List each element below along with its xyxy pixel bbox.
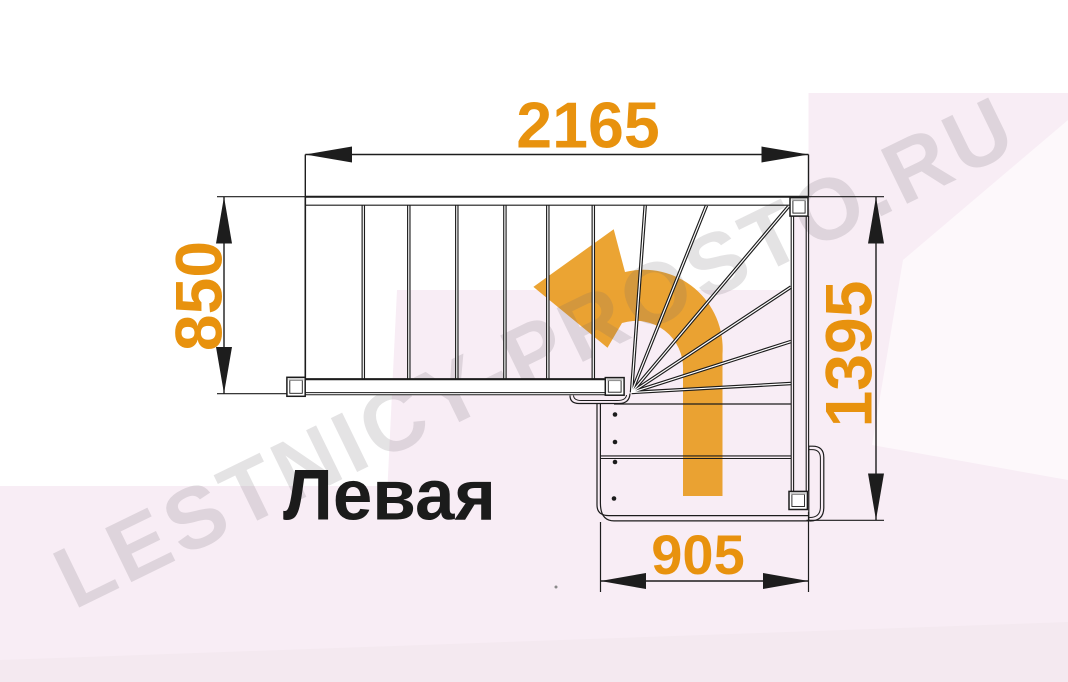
svg-text:2165: 2165 bbox=[516, 89, 660, 161]
svg-text:850: 850 bbox=[162, 241, 236, 351]
svg-text:Левая: Левая bbox=[283, 457, 496, 536]
svg-text:1395: 1395 bbox=[812, 281, 886, 428]
svg-text:905: 905 bbox=[651, 523, 744, 586]
